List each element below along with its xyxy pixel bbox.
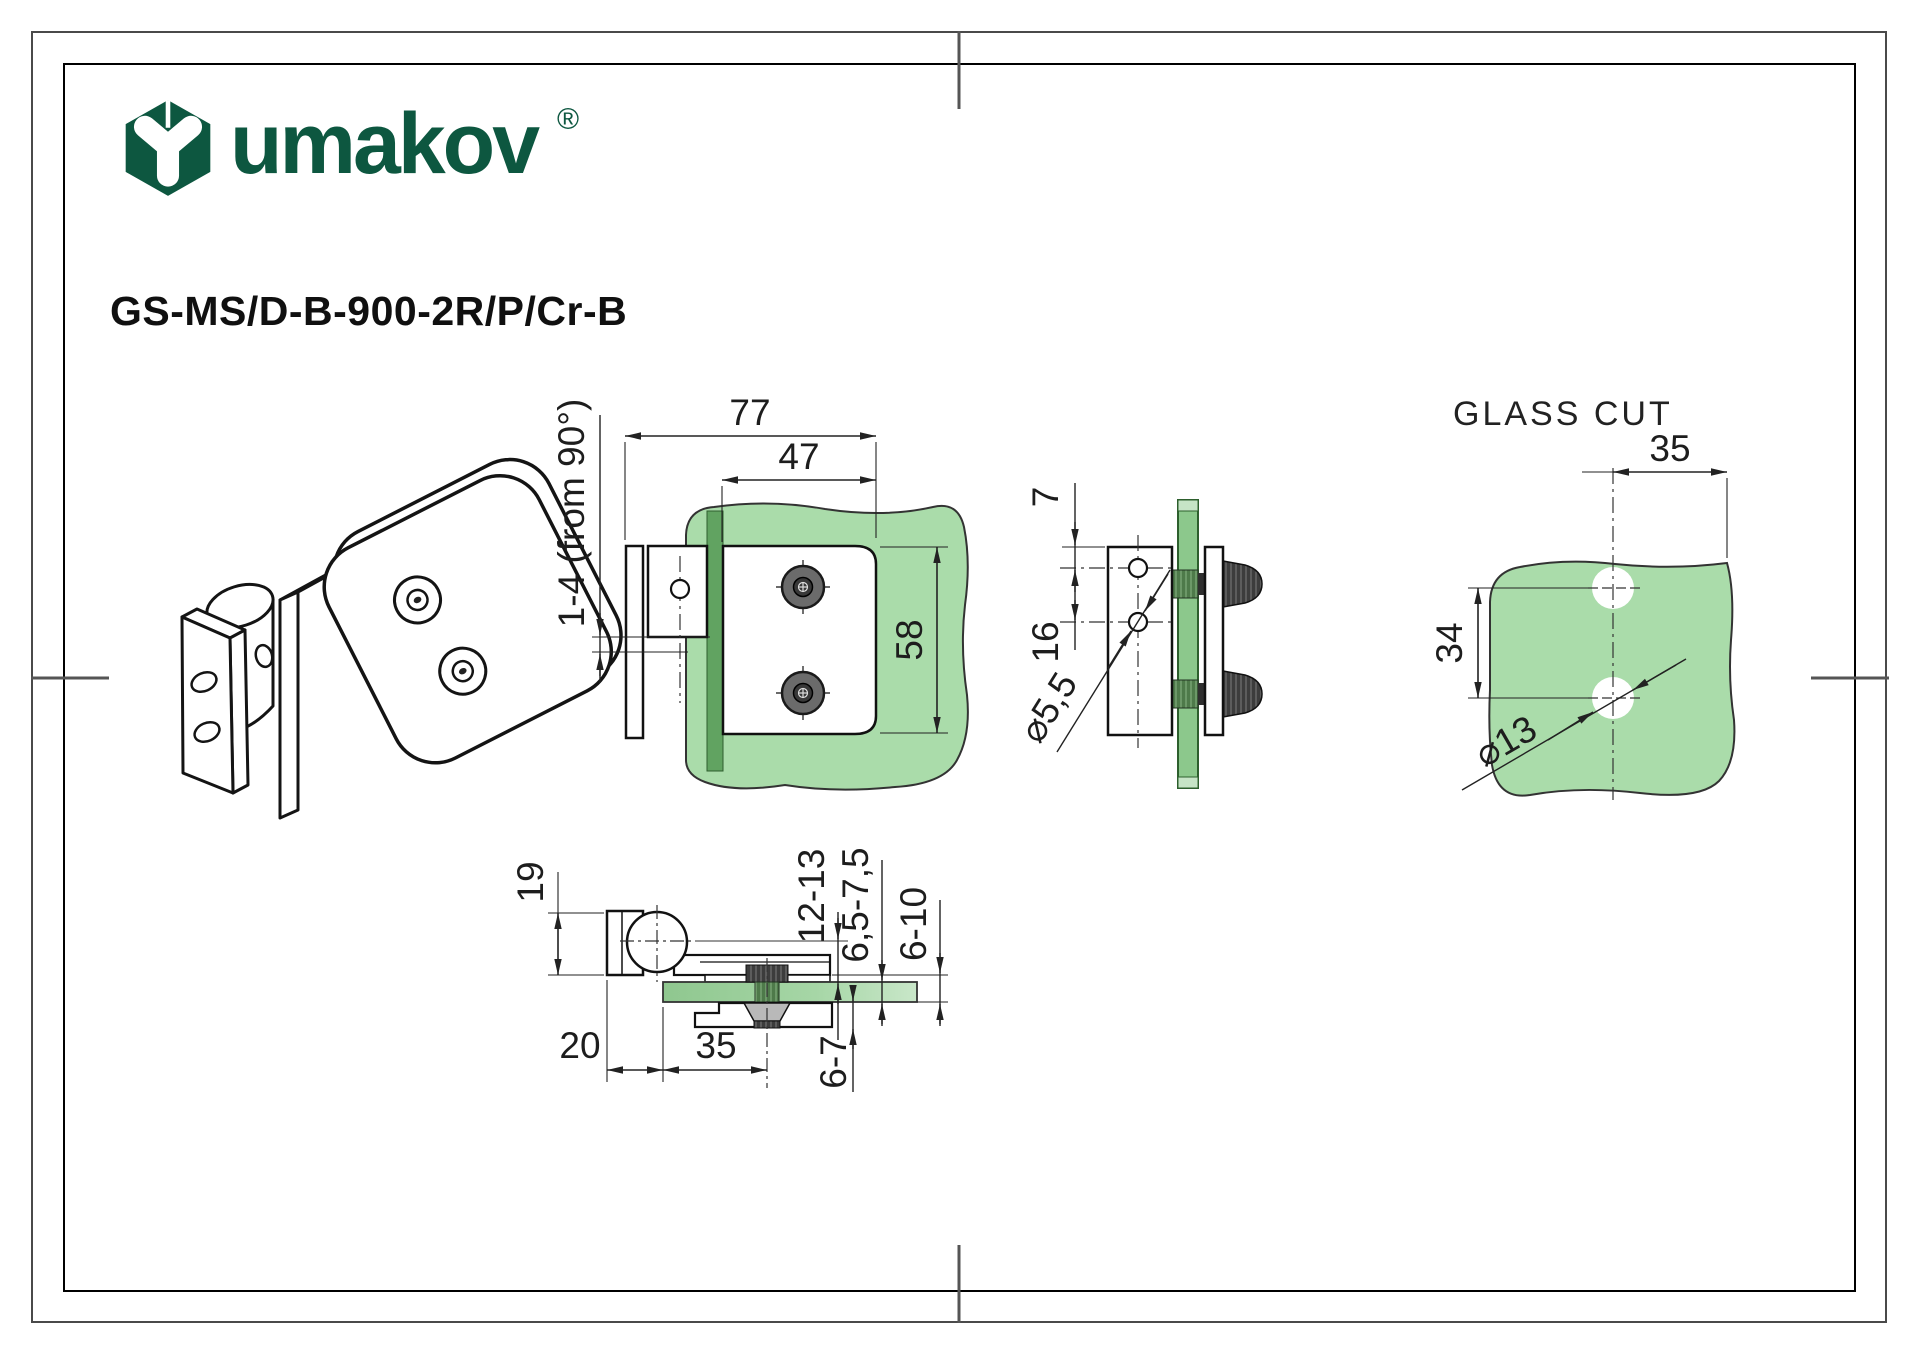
bottom-view: 19 12-13 6-7 6,5-7,5 [510,847,948,1092]
side-cover-plate [1205,547,1223,735]
front-glass-edge-band [707,511,723,771]
iso-wall-plate [182,609,248,793]
svg-text:6-7: 6-7 [813,1035,854,1088]
svg-text:12-13: 12-13 [791,849,832,944]
drawing-sheet: umakov ® GS-MS/D-B-900-2R/P/Cr-B [0,0,1920,1357]
dim-glass-cut-edge-distance: 35 [1582,428,1727,558]
front-bracket-hole [671,580,689,598]
glass-cut-title: GLASS CUT [1453,395,1673,433]
svg-text:77: 77 [729,392,770,433]
dim-bottom-screw-distance: 35 [663,1025,767,1070]
svg-text:6-10: 6-10 [893,887,934,961]
svg-text:35: 35 [695,1025,736,1066]
svg-text:1-4 (from 90°): 1-4 (from 90°) [551,399,592,628]
bottom-glass-section [663,982,917,1002]
side-glass-section [1178,500,1198,788]
svg-text:20: 20 [559,1025,600,1066]
svg-text:⌀5,5: ⌀5,5 [1011,665,1085,749]
dim-bottom-wall-offset: 20 [559,980,663,1082]
dim-bottom-knuckle-width: 19 [510,861,604,975]
svg-text:6,5-7,5: 6,5-7,5 [835,847,876,962]
dim-side-hole-offset: 7 16 [1025,483,1105,663]
svg-text:34: 34 [1429,622,1470,663]
svg-text:35: 35 [1649,428,1690,469]
side-view: 7 16 ⌀5,5 [1011,483,1262,788]
glass-cut-view: GLASS CUT 35 34 [1429,395,1734,800]
front-view: 77 47 58 1-4 (from 90°) [551,392,968,790]
technical-drawing: 77 47 58 1-4 (from 90°) [0,0,1920,1357]
side-hole-top [1129,559,1147,577]
svg-text:19: 19 [510,861,551,902]
dim-side-hole-spacing-label: 16 [1025,621,1066,662]
svg-text:47: 47 [778,436,819,477]
svg-text:7: 7 [1025,487,1066,508]
svg-text:58: 58 [889,619,930,660]
